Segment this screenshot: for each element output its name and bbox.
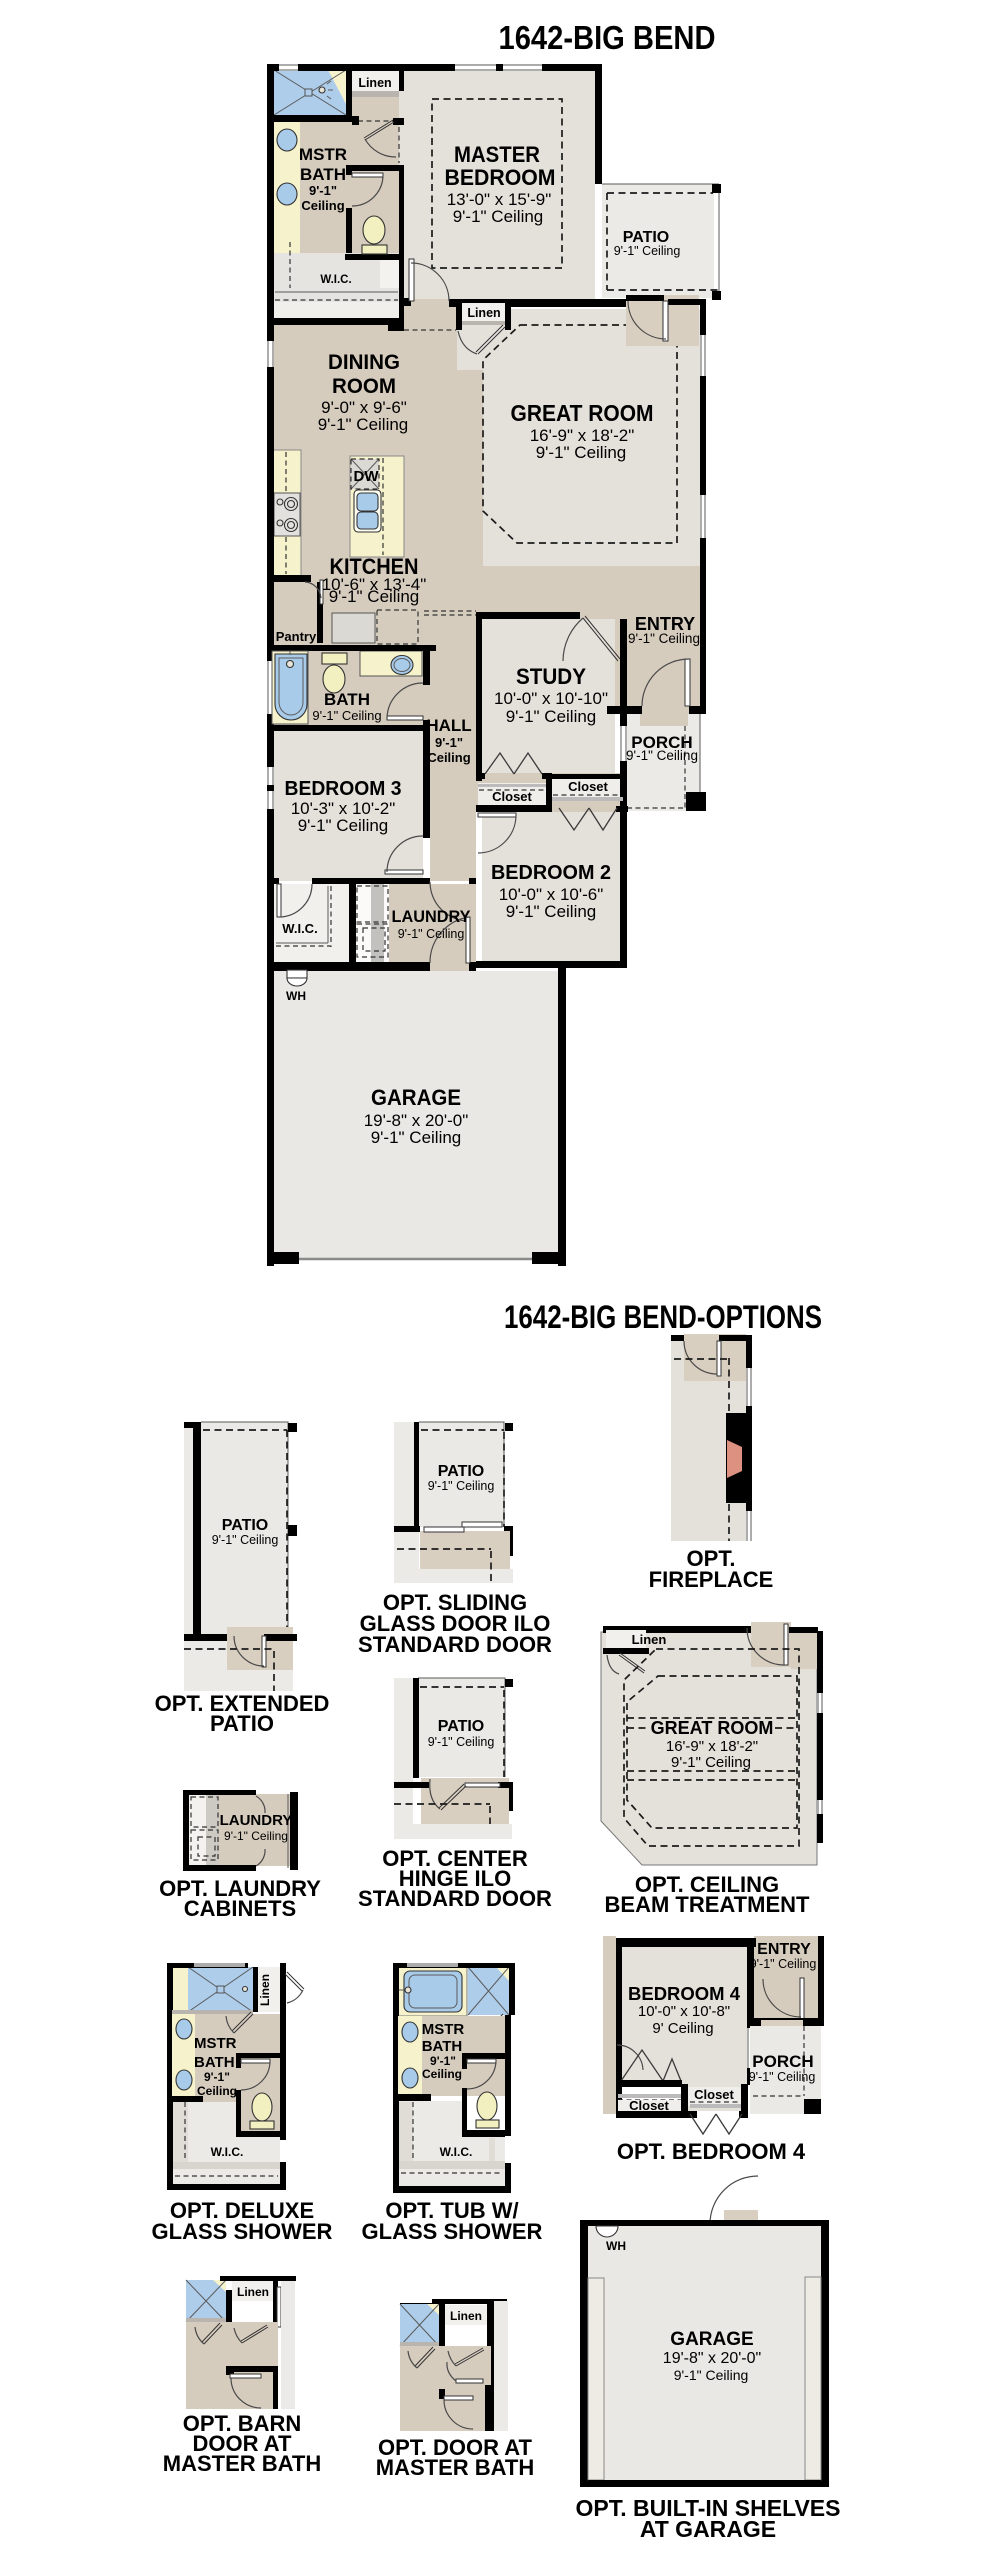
svg-text:Linen: Linen xyxy=(632,1632,667,1647)
svg-text:DW: DW xyxy=(354,468,380,485)
svg-text:WH: WH xyxy=(606,2239,626,2253)
svg-text:19'-8" x 20'-0": 19'-8" x 20'-0" xyxy=(663,2350,761,2367)
svg-text:ROOM: ROOM xyxy=(332,375,396,398)
svg-text:10'-0" x 10'-10": 10'-0" x 10'-10" xyxy=(494,689,608,708)
svg-text:BATH: BATH xyxy=(324,690,370,709)
svg-text:Closet: Closet xyxy=(492,789,532,804)
svg-text:CABINETS: CABINETS xyxy=(184,1896,296,1921)
svg-text:HALL: HALL xyxy=(426,716,471,735)
svg-text:STANDARD DOOR: STANDARD DOOR xyxy=(358,1886,552,1911)
svg-text:PATIO: PATIO xyxy=(438,1463,485,1480)
svg-text:9'-1": 9'-1" xyxy=(435,735,463,750)
svg-text:GARAGE: GARAGE xyxy=(371,1085,461,1110)
svg-text:9'-1" Ceiling: 9'-1" Ceiling xyxy=(212,1533,279,1547)
svg-text:FIREPLACE: FIREPLACE xyxy=(649,1567,774,1592)
svg-text:9'-1" Ceiling: 9'-1" Ceiling xyxy=(318,415,409,434)
svg-text:Pantry: Pantry xyxy=(276,629,317,644)
svg-text:BEDROOM 4: BEDROOM 4 xyxy=(628,1984,740,2004)
svg-text:9'-1" Ceiling: 9'-1" Ceiling xyxy=(428,1735,495,1749)
svg-text:GARAGE: GARAGE xyxy=(670,2329,753,2350)
svg-text:MASTER BATH: MASTER BATH xyxy=(163,2451,321,2476)
svg-text:Closet: Closet xyxy=(694,2087,734,2102)
svg-text:BATH: BATH xyxy=(422,2038,463,2055)
svg-text:16'-9" x 18'-2": 16'-9" x 18'-2" xyxy=(666,1738,758,1755)
svg-text:STANDARD DOOR: STANDARD DOOR xyxy=(358,1632,552,1657)
svg-text:Ceiling: Ceiling xyxy=(427,750,470,765)
svg-text:MASTER: MASTER xyxy=(454,142,540,167)
svg-text:Linen: Linen xyxy=(467,306,500,320)
svg-text:9'-1" Ceiling: 9'-1" Ceiling xyxy=(224,1829,288,1843)
svg-text:BEDROOM 3: BEDROOM 3 xyxy=(285,778,402,800)
svg-text:MSTR: MSTR xyxy=(194,2035,237,2052)
svg-text:Closet: Closet xyxy=(629,2098,669,2113)
svg-text:W.I.C.: W.I.C. xyxy=(282,921,317,936)
svg-text:1642-BIG BEND: 1642-BIG BEND xyxy=(499,19,716,56)
svg-text:9'-1" Ceiling: 9'-1" Ceiling xyxy=(628,631,700,646)
svg-text:9'-1" Ceiling: 9'-1" Ceiling xyxy=(453,207,544,226)
svg-text:W.I.C.: W.I.C. xyxy=(320,274,351,286)
svg-text:9'-1" Ceiling: 9'-1" Ceiling xyxy=(298,816,389,835)
svg-text:Ceiling: Ceiling xyxy=(422,2067,462,2081)
svg-text:Ceiling: Ceiling xyxy=(301,198,344,213)
svg-text:W.I.C.: W.I.C. xyxy=(211,2145,244,2159)
svg-text:Linen: Linen xyxy=(258,1974,272,2006)
svg-text:W.I.C.: W.I.C. xyxy=(440,2145,473,2159)
svg-text:MSTR: MSTR xyxy=(422,2021,465,2038)
svg-text:GREAT ROOM: GREAT ROOM xyxy=(651,1718,774,1738)
svg-text:MSTR: MSTR xyxy=(299,145,347,164)
svg-text:9'-1" Ceiling: 9'-1" Ceiling xyxy=(371,1128,462,1147)
svg-text:9'-1" Ceiling: 9'-1" Ceiling xyxy=(536,443,627,462)
svg-text:10'-0" x 10'-8": 10'-0" x 10'-8" xyxy=(638,2003,730,2020)
svg-text:LAUNDRY: LAUNDRY xyxy=(392,907,472,926)
svg-text:MASTER BATH: MASTER BATH xyxy=(376,2455,534,2480)
svg-text:ENTRY: ENTRY xyxy=(757,1941,811,1958)
svg-text:PATIO: PATIO xyxy=(210,1711,274,1736)
svg-text:PATIO: PATIO xyxy=(222,1517,269,1534)
svg-text:PATIO: PATIO xyxy=(438,1718,485,1735)
svg-text:GLASS SHOWER: GLASS SHOWER xyxy=(362,2219,543,2244)
svg-text:WH: WH xyxy=(286,989,306,1003)
svg-text:Ceiling: Ceiling xyxy=(197,2084,237,2098)
svg-text:Linen: Linen xyxy=(358,76,391,90)
svg-text:9'-1" Ceiling: 9'-1" Ceiling xyxy=(614,244,681,258)
svg-text:STUDY: STUDY xyxy=(516,664,586,689)
svg-text:Linen: Linen xyxy=(237,2285,269,2299)
svg-text:9'-1" Ceiling: 9'-1" Ceiling xyxy=(312,708,381,723)
svg-text:9'-1" Ceiling: 9'-1" Ceiling xyxy=(428,1479,495,1493)
svg-text:9'-1" Ceiling: 9'-1" Ceiling xyxy=(626,748,698,763)
svg-text:BEDROOM 2: BEDROOM 2 xyxy=(491,862,611,884)
svg-text:DINING: DINING xyxy=(328,351,400,374)
svg-text:BEAM TREATMENT: BEAM TREATMENT xyxy=(605,1892,810,1917)
svg-text:Linen: Linen xyxy=(450,2309,482,2323)
svg-text:9'-1": 9'-1" xyxy=(430,2054,456,2068)
svg-text:GREAT ROOM: GREAT ROOM xyxy=(511,400,654,426)
svg-text:OPT. BEDROOM 4: OPT. BEDROOM 4 xyxy=(617,2139,806,2164)
svg-text:9'-1" Ceiling: 9'-1" Ceiling xyxy=(329,587,420,606)
svg-text:Closet: Closet xyxy=(568,779,608,794)
svg-text:LAUNDRY: LAUNDRY xyxy=(220,1812,293,1829)
svg-text:1642-BIG BEND-OPTIONS: 1642-BIG BEND-OPTIONS xyxy=(504,1299,822,1335)
svg-text:PORCH: PORCH xyxy=(752,2052,813,2071)
svg-text:9' Ceiling: 9' Ceiling xyxy=(652,2020,713,2037)
svg-text:9'-1": 9'-1" xyxy=(309,183,337,198)
svg-text:BATH: BATH xyxy=(300,165,346,184)
svg-text:9'-1" Ceiling: 9'-1" Ceiling xyxy=(750,1957,817,1971)
svg-text:GLASS SHOWER: GLASS SHOWER xyxy=(152,2219,333,2244)
svg-text:9'-1" Ceiling: 9'-1" Ceiling xyxy=(749,2070,816,2084)
svg-text:9'-1" Ceiling: 9'-1" Ceiling xyxy=(671,1754,751,1771)
svg-text:9'-1" Ceiling: 9'-1" Ceiling xyxy=(674,2367,749,2383)
svg-text:9'-1": 9'-1" xyxy=(204,2070,230,2084)
svg-text:9'-1" Ceiling: 9'-1" Ceiling xyxy=(398,927,465,941)
svg-text:BEDROOM: BEDROOM xyxy=(445,165,556,190)
svg-text:9'-1" Ceiling: 9'-1" Ceiling xyxy=(506,902,597,921)
svg-text:BATH: BATH xyxy=(194,2054,235,2071)
svg-text:9'-1" Ceiling: 9'-1" Ceiling xyxy=(506,707,597,726)
svg-text:AT GARAGE: AT GARAGE xyxy=(640,2516,776,2542)
